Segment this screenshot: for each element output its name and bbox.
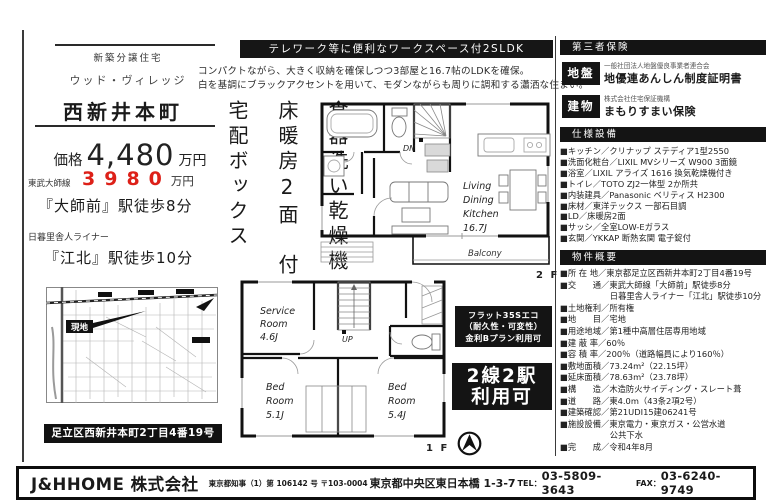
stairs-dn-label: DN [403, 144, 415, 153]
svg-text:Bed: Bed [388, 382, 407, 393]
tel-number: 03-5809-3643 [542, 469, 634, 497]
floor-2f-label: 2 F [536, 270, 559, 281]
building-cert: まもりすまい保険 [604, 103, 696, 119]
stairs-2f [414, 104, 450, 138]
overview-item: ■完 成／令和4年8月 [560, 442, 766, 454]
svg-text:5.4J: 5.4J [388, 410, 406, 421]
price-value: 4,480 [86, 138, 174, 172]
svg-text:Bed: Bed [266, 382, 285, 393]
overview-item: ■容 積 率／200％（道路幅員により160％） [560, 349, 766, 361]
project-name: ウッド・ヴィレッジ [40, 72, 216, 88]
left-frame-line [22, 30, 24, 462]
top-rule [55, 44, 215, 46]
property-type: 新築分譲住宅 [40, 50, 216, 64]
overview-header: 物件概要 [560, 250, 766, 265]
toilet-1f [412, 334, 440, 350]
overview-item: 日暮里舎人ライナー「江北」駅徒歩10分 [560, 291, 766, 303]
address-bar: 足立区西新井本町2丁目4番19号 [44, 424, 222, 443]
spec-item: ■玄関／YKKAP 断熱玄関 電子錠付 [560, 233, 766, 244]
ground-cert: 地優連あんしん制度証明書 [604, 70, 742, 86]
svg-text:Room: Room [266, 396, 293, 407]
location-map: 現地 [46, 287, 218, 403]
deck-2f [321, 242, 373, 262]
sale-price-unit: 万円 [171, 173, 194, 189]
overview-item: ■道 路／東4.0m（43条2項2号） [560, 396, 766, 408]
headline-banner: テレワーク等に便利なワークスペース付2SLDK [240, 40, 553, 58]
ground-badge: 地盤 [562, 62, 600, 85]
stairs-1f [338, 282, 370, 330]
overview-list: ■所 在 地／東京都足立区西新井本町2丁目4番19号 ■交 通／東武大師線「大師… [560, 268, 766, 454]
spec-item: ■浴室／LIXIL アライズ 1616 換気乾燥機付き [560, 168, 766, 179]
ldk-label: Living Dining Kitchen 16.7J [463, 181, 499, 234]
railway-2-line: 日暮里舎人ライナー [28, 230, 109, 243]
svg-text:16.7J: 16.7J [463, 223, 487, 234]
overview-item: ■交 通／東武大師線「大師前」駅徒歩8分 [560, 280, 766, 292]
svg-text:5.1J: 5.1J [266, 410, 284, 421]
flat35-line-3: 金利Bプラン利用可 [455, 333, 552, 344]
railway-1-line: 東武大師線 [28, 177, 71, 189]
mid-rule [35, 125, 215, 127]
overview-item: ■敷地面積／73.24m²（22.15坪） [560, 361, 766, 373]
spec-item: ■内装建具／Panasonic ベリティス H2300 [560, 190, 766, 201]
overview-item: ■地 目／宅地 [560, 314, 766, 326]
door-arcs-1f [282, 282, 432, 374]
description-line-2: 白を基調にブラックアクセントを用いて、モダンながらも周りに調和する瀟洒な住まい。 [198, 77, 558, 91]
spec-header: 仕様設備 [560, 127, 766, 142]
closets-2f [425, 144, 450, 172]
company-name: J&HHOME 株式会社 [31, 471, 199, 495]
svg-text:Kitchen: Kitchen [463, 209, 499, 220]
fax-label: FAX： [636, 478, 661, 489]
access-line-2: 利用可 [452, 387, 552, 408]
overview-item: ■建築確認／第21UDI15建06241号 [560, 407, 766, 419]
svg-text:Room: Room [260, 319, 287, 330]
company-footer: J&HHOME 株式会社 東京都知事（1）第 106142 号 〒103-000… [16, 466, 756, 500]
service-room-label: Service Room 4.6J [260, 306, 295, 343]
overview-item: ■施設設備／東京電力・東京ガス・公営水道 [560, 419, 766, 431]
overview-item: 公共下水 [560, 430, 766, 442]
town-name: 西新井本町 [30, 96, 216, 125]
floor-1f-label: 1 F [426, 443, 449, 454]
overview-item: ■所 在 地／東京都足立区西新井本町2丁目4番19号 [560, 268, 766, 280]
closets-1f [306, 386, 366, 432]
svg-text:Room: Room [388, 396, 415, 407]
compass-icon [456, 430, 483, 457]
overview-item: ■土地権利／所有権 [560, 303, 766, 315]
sale-price-value: 3980 [82, 168, 171, 190]
flyer-page: 新築分譲住宅 ウッド・ヴィレッジ 西新井本町 価格 4,480 万円 3980 … [0, 0, 768, 503]
building-badge: 建物 [562, 95, 600, 118]
overview-item: ■延床面積／78.63m²（23.78坪） [560, 372, 766, 384]
balcony-label: Balcony [468, 249, 503, 259]
access-box: 2線2駅 利用可 [452, 363, 552, 410]
bedroom-1-label: Bed Room 5.1J [266, 382, 293, 421]
svg-text:4.6J: 4.6J [260, 332, 278, 343]
spec-list: ■キッチン／クリナップ ステディア1型2550 ■洗面化粧台／LIXIL MVシ… [560, 146, 766, 244]
spec-item: ■床材／東洋テックス 一部石目調 [560, 201, 766, 212]
description-line-1: コンパクトながら、大きく収納を確保しつつ3部屋と16.7帖のLDKを確保。 [198, 63, 558, 77]
site-label: 現地 [71, 322, 89, 333]
price-row: 価格 4,480 万円 [40, 138, 220, 172]
company-address: 東京都中央区東日本橋 1-3-7 [370, 475, 516, 491]
access-line-1: 2線2駅 [452, 366, 552, 387]
license-number: 東京都知事（1）第 106142 号 〒103-0004 [209, 478, 368, 489]
bedroom-2-label: Bed Room 5.4J [388, 382, 415, 421]
railway-2-station: 『江北』駅徒歩10分 [44, 247, 193, 268]
flat35-line-1: フラット35Sエコ [455, 310, 552, 321]
svg-text:Dining: Dining [463, 195, 494, 206]
overview-item: ■建 蔽 率／60％ [560, 338, 766, 350]
spec-item: ■キッチン／クリナップ ステディア1型2550 [560, 146, 766, 157]
entrance-porch [422, 286, 442, 324]
spec-item: ■サッシ／全室LOW-Eガラス [560, 222, 766, 233]
flat35-box: フラット35Sエコ （耐久性・可変性） 金利Bプラン利用可 [455, 306, 552, 347]
sale-price-row: 3980 万円 [82, 168, 194, 190]
flat35-line-2: （耐久性・可変性） [455, 321, 552, 332]
svg-text:Service: Service [260, 306, 295, 317]
spec-item: ■LD／床暖房2面 [560, 211, 766, 222]
building-org: 株式会社住宅保証機構 [604, 93, 670, 103]
overview-item: ■用途地域／第1種中高層住居専用地域 [560, 326, 766, 338]
floor-plan-1f: Service Room 4.6J Bed Room 5.1J Bed Room… [238, 270, 456, 462]
warranty-header: 第三者保険 [560, 40, 766, 55]
overview-item: ■構 造／木造防火サイディング・スレート葺 [560, 384, 766, 396]
spec-item: ■洗面化粧台／LIXIL MVシリーズ W900 3面鏡 [560, 157, 766, 168]
ground-org: 一般社団法人地盤優良事業者連合会 [604, 60, 710, 70]
railway-1-station: 『大師前』駅徒歩8分 [38, 195, 193, 216]
price-label: 価格 [53, 149, 82, 170]
right-panel-divider [555, 36, 556, 456]
spec-item: ■トイレ／TOTO ZJ2一体型 2か所共 [560, 179, 766, 190]
stairs-up-label: UP [342, 335, 353, 344]
fax-number: 03-6240-9749 [661, 469, 753, 497]
tel-label: TEL： [518, 478, 542, 489]
svg-text:Living: Living [463, 181, 491, 192]
floor-plan-2f: Living Dining Kitchen 16.7J Balcony DN [318, 94, 554, 272]
